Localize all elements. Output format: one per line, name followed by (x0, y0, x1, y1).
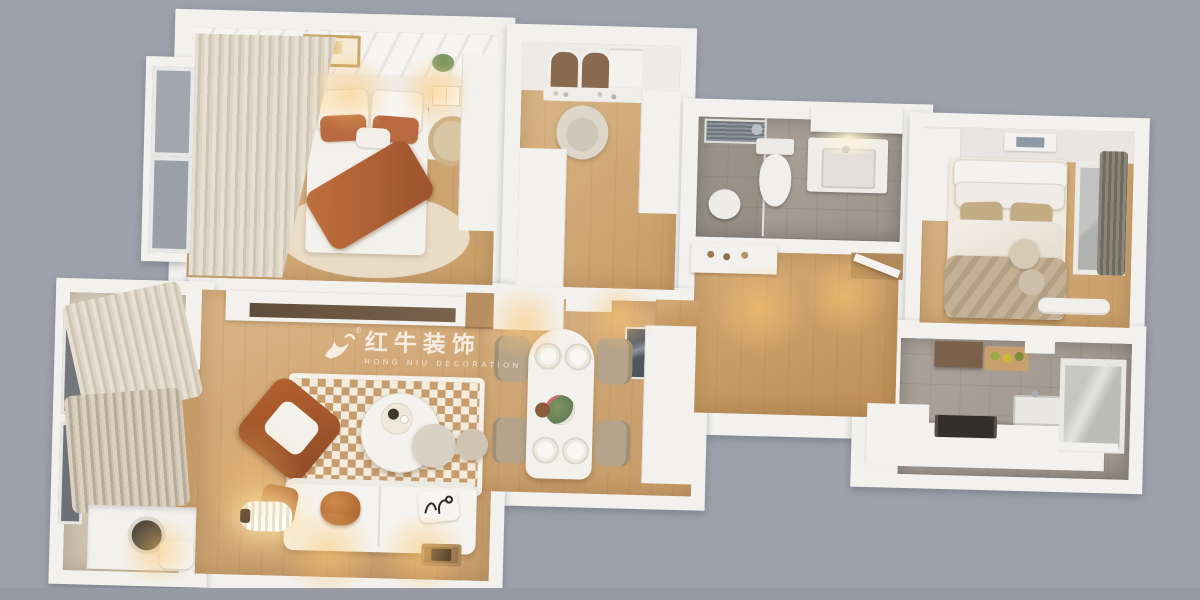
dining-chair-right-2 (594, 420, 631, 467)
pillow-scribble-art (417, 488, 460, 524)
sofa-pouf-caramel (320, 491, 361, 526)
master-wardrobe (458, 54, 500, 231)
vanity-sink (821, 148, 876, 189)
dining-chair-left-2 (492, 417, 529, 464)
sofa-pillow-patterned (417, 488, 460, 524)
watermark-title-cn: 红牛装饰 (364, 330, 522, 359)
dressing-wardrobe-left (516, 148, 567, 287)
kitchen-counter-left (866, 403, 930, 467)
dining-ceiling-beam (566, 287, 613, 312)
dressing-vanity-counter (543, 86, 645, 103)
toilet-tank (756, 138, 794, 155)
dining-soffit-left (493, 285, 564, 331)
bay-window-pane-upper (151, 66, 195, 157)
bedroom2-ac-unit (1038, 297, 1110, 315)
floor-lamp-base (240, 509, 250, 523)
registered-mark: ® (355, 326, 361, 335)
render-canvas: ® 红牛装饰 HONG NIU DECORATION (0, 0, 1200, 600)
watermark-text: 红牛装饰 HONG NIU DECORATION (364, 330, 522, 370)
dressing-cosmetics (553, 91, 558, 96)
master-open-book (432, 86, 461, 107)
kitchen-window-sill (1052, 442, 1118, 452)
bedroom2-curtain (1097, 151, 1128, 276)
bathroom-upper-shelf (810, 105, 903, 133)
background-bottom-band (0, 588, 1200, 600)
kitchen-window (1058, 358, 1126, 454)
floor-tray-dish (431, 549, 451, 562)
bedroom2-art-print (1016, 137, 1044, 148)
kitchen-wall-box (1025, 333, 1056, 354)
laundry-basin (159, 541, 194, 570)
entry-shoe-cabinet (691, 242, 778, 274)
floor-plan: ® 红牛装饰 HONG NIU DECORATION (0, 0, 1200, 600)
balcony-curtain-lower (63, 387, 190, 514)
master-lumbar-pillow (356, 127, 391, 149)
dressing-cabinet-right (638, 91, 680, 214)
bull-logo-icon: ® (320, 329, 357, 366)
dining-chair-right-1 (596, 338, 633, 385)
kitchen-sink (1013, 395, 1064, 426)
bay-window-pane-lower (148, 156, 192, 253)
watermark: ® 红牛装饰 HONG NIU DECORATION (320, 329, 491, 370)
kitchen-upper-cabinet (934, 341, 983, 368)
dressing-open-shelf (610, 48, 643, 87)
kitchen-cooktop (935, 415, 998, 439)
dining-cabinet-column (641, 325, 696, 484)
